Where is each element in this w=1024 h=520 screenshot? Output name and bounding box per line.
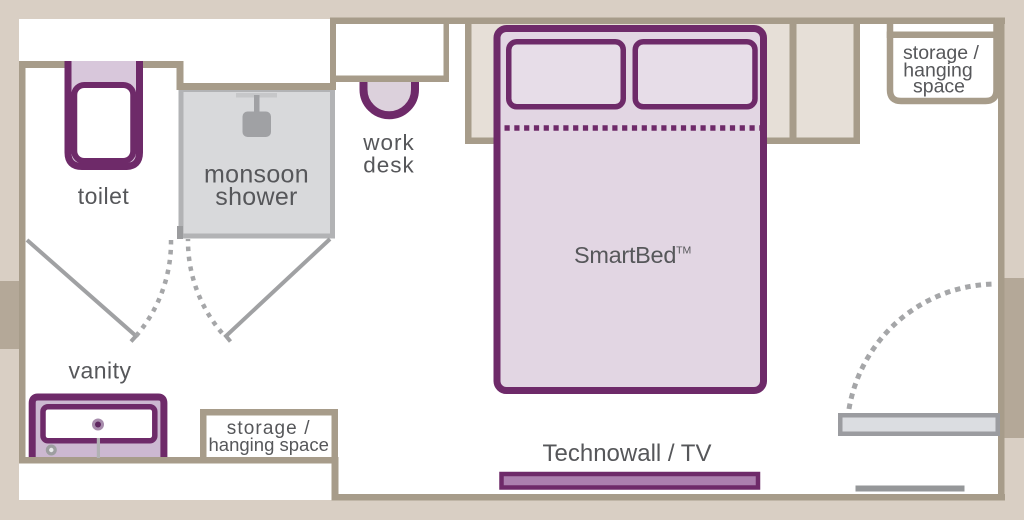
svg-text:SmartBedTM: SmartBedTM bbox=[574, 242, 691, 268]
svg-text:Technowall / TV: Technowall / TV bbox=[543, 440, 712, 467]
svg-text:shower: shower bbox=[215, 183, 297, 211]
svg-text:toilet: toilet bbox=[78, 183, 130, 209]
svg-text:vanity: vanity bbox=[68, 358, 131, 384]
svg-text:desk: desk bbox=[363, 152, 415, 177]
svg-text:space: space bbox=[913, 76, 965, 98]
svg-text:hanging space: hanging space bbox=[209, 434, 329, 455]
svg-text:work: work bbox=[362, 130, 415, 155]
